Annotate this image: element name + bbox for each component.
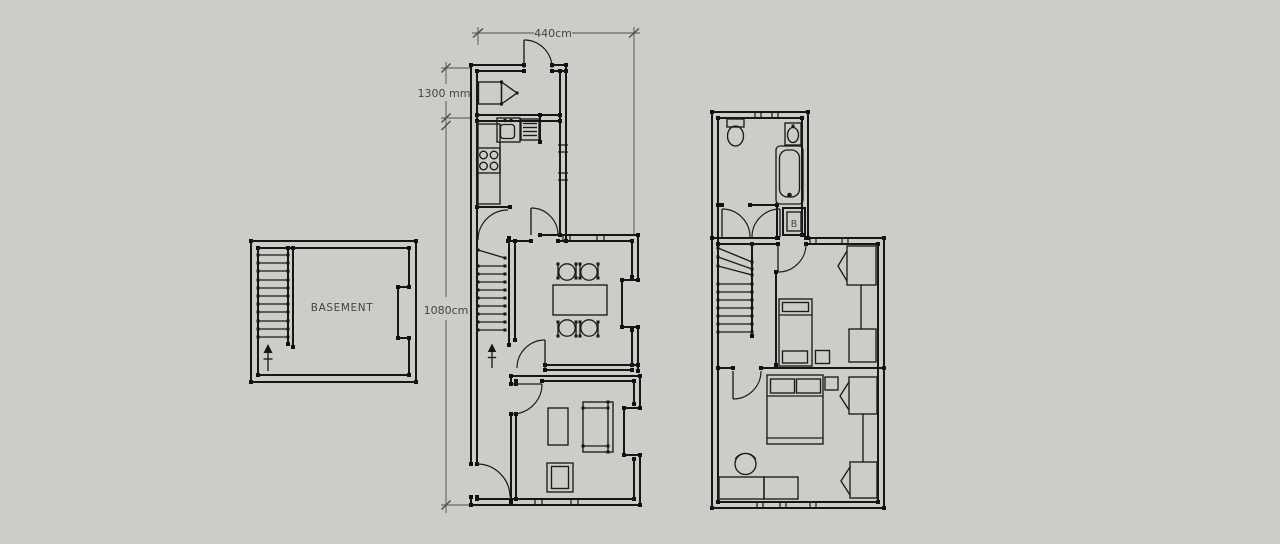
basement-stairs-up-arrow-icon xyxy=(264,344,273,371)
ground-floor-doors xyxy=(477,40,558,497)
boiler-label: B xyxy=(791,219,798,230)
porch-basin xyxy=(479,82,518,104)
basement-plan: BASEMENT xyxy=(251,241,416,382)
dining-table-and-chairs xyxy=(553,264,607,336)
dimension-top-width-label: 440cm xyxy=(534,27,572,40)
dimension-side-height: 1080cm xyxy=(424,121,471,513)
kitchen-fixtures xyxy=(477,118,539,204)
basement-label: BASEMENT xyxy=(311,302,373,314)
drawing-canvas[interactable]: 440cm 1300 mm 1080cm xyxy=(0,0,1280,544)
first-floor-walls xyxy=(712,112,884,508)
first-floor-plan: B xyxy=(712,112,884,508)
dimension-porch-depth-label: 1300 mm xyxy=(418,87,471,100)
front-bedroom-furniture xyxy=(719,375,877,499)
dimension-porch-depth: 1300 mm xyxy=(418,62,471,124)
ground-floor-stairs xyxy=(478,250,505,330)
rear-bedroom-furniture xyxy=(779,246,876,366)
dimension-side-height-label: 1080cm xyxy=(424,304,469,317)
basement-stairs xyxy=(258,255,288,337)
ground-floor-plan xyxy=(471,40,640,505)
ground-floor-stairs-up-arrow-icon xyxy=(488,344,496,369)
bathroom-fixtures xyxy=(727,119,803,204)
floor-plan-drawing: 440cm 1300 mm 1080cm xyxy=(0,0,1280,544)
living-room-furniture xyxy=(547,402,613,492)
first-floor-stairs xyxy=(718,248,752,332)
dimension-annotations: 440cm 1300 mm 1080cm xyxy=(418,27,640,513)
ground-floor-window-ticks xyxy=(535,145,604,505)
